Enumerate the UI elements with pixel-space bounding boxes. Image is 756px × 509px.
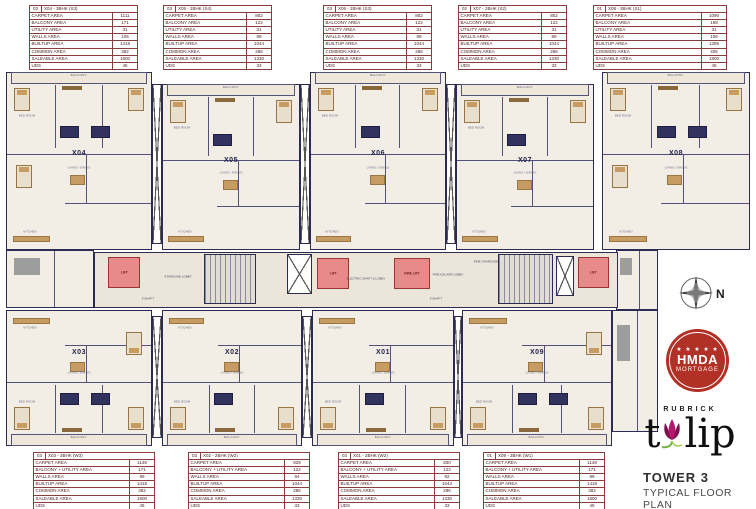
wall-divider xyxy=(511,206,593,207)
unit-label-x05: X05 xyxy=(163,157,299,164)
wardrobe-furniture xyxy=(215,98,235,102)
bed-furniture xyxy=(726,88,742,111)
unit-label-x06: X06 xyxy=(311,150,445,157)
room-label-kitchen: KITCHEN xyxy=(165,231,205,234)
wall-divider xyxy=(651,85,652,148)
unit-block-x02: BALCONY X02 LIVING / DINING KITCHEN BED … xyxy=(162,310,302,446)
balcony-label: BALCONY xyxy=(351,436,416,439)
room-label-bed: BED ROOM xyxy=(313,401,353,404)
brand-logo: RUBRICK t lip xyxy=(628,406,752,455)
lift: LIFT xyxy=(317,258,349,289)
wall-divider xyxy=(253,97,254,156)
wall-divider xyxy=(502,97,503,156)
toilet-block xyxy=(657,126,676,138)
hmda-mortgage-badge: ★ ★ ★ ★ ★ HMDA MORTGAGE xyxy=(666,329,729,392)
wordmark-lip: lip xyxy=(684,413,735,455)
wall-divider xyxy=(55,85,56,148)
wall-divider xyxy=(683,154,684,203)
unit-label-x03: X03 xyxy=(7,349,151,356)
unit-block-x01: BALCONY X01 LIVING / DINING KITCHEN BED … xyxy=(312,310,454,446)
dining-table-furniture xyxy=(517,180,532,190)
unit-label-x01: X01 xyxy=(313,349,453,356)
bed-furniture xyxy=(464,100,480,123)
kitchen-counter xyxy=(462,236,497,242)
toilet-block xyxy=(91,126,110,138)
balcony: BALCONY xyxy=(461,84,589,96)
light-well-shaft xyxy=(454,316,462,438)
wall-divider xyxy=(54,251,55,307)
wall-divider xyxy=(208,97,209,156)
room-label-living: LIVING / DINING xyxy=(505,172,545,175)
lift-label: LIFT xyxy=(121,271,128,274)
room-label-kitchen: KITCHEN xyxy=(467,327,507,330)
unit-block-x03: BALCONY X03 LIVING / DINING KITCHEN BED … xyxy=(6,310,152,446)
toilet-block xyxy=(361,126,380,138)
balcony-label: BALCONY xyxy=(200,436,264,439)
bed-furniture xyxy=(14,407,30,430)
bed-furniture xyxy=(14,88,30,111)
badge-hmda-text: HMDA xyxy=(677,353,718,367)
dining-table-furniture xyxy=(375,362,390,372)
room-label-living: LIVING / DINING xyxy=(212,371,252,374)
toilet-block xyxy=(214,393,233,405)
brand-tulip-wordmark: t lip xyxy=(628,413,752,455)
staircase xyxy=(204,254,256,304)
balcony: BALCONY xyxy=(467,434,606,446)
room-label-bed: BED ROOM xyxy=(310,115,350,118)
wall-divider xyxy=(369,345,453,346)
balcony: BALCONY xyxy=(315,72,441,84)
room-label-living: LIVING / DINING xyxy=(358,166,398,169)
wardrobe-furniture xyxy=(215,428,235,432)
room-label-bed: BED ROOM xyxy=(162,401,202,404)
unit-label-x09: X09 xyxy=(463,349,611,356)
light-well-shaft xyxy=(300,84,310,244)
room-label-living: LIVING / DINING xyxy=(363,371,403,374)
service-room-block xyxy=(616,250,658,310)
toilet-block xyxy=(688,126,707,138)
room-label-bed: BED ROOM xyxy=(456,127,496,130)
wall-divider xyxy=(365,203,445,204)
wardrobe-furniture xyxy=(362,86,382,90)
light-well-shaft xyxy=(152,84,162,244)
wardrobe-furniture xyxy=(658,86,678,90)
unit-block-x09: BALCONY X09 LIVING / DINING KITCHEN BED … xyxy=(462,310,612,446)
wall-divider xyxy=(547,97,548,156)
wardrobe-furniture xyxy=(62,428,82,432)
balcony-label: BALCONY xyxy=(503,436,572,439)
toilet-block xyxy=(60,126,79,138)
wall-divider xyxy=(313,382,453,383)
unit-block-x08: BALCONY X08 LIVING / DINING KITCHEN BED … xyxy=(602,72,750,250)
corridor-label: STAIRCASE LOBBY xyxy=(158,276,198,279)
wall-divider xyxy=(661,203,749,204)
duct-block xyxy=(617,325,630,361)
wall-divider xyxy=(102,85,103,148)
wall-divider xyxy=(699,85,700,148)
kitchen-counter xyxy=(319,318,355,324)
toilet-block xyxy=(518,393,537,405)
title-block: TOWER 3 TYPICAL FLOOR PLAN xyxy=(643,470,756,509)
toilet-block xyxy=(365,393,384,405)
wall-divider xyxy=(7,382,151,383)
unit-label-x04: X04 xyxy=(7,150,151,157)
toilet-block xyxy=(91,393,110,405)
duct-block xyxy=(620,258,632,275)
balcony: BALCONY xyxy=(607,72,744,84)
lift: LIFT xyxy=(108,257,140,288)
room-label-bed: BED ROOM xyxy=(7,115,47,118)
service-shaft xyxy=(287,254,312,294)
room-label-living: LIVING / DINING xyxy=(59,371,99,374)
compass-north-label: N xyxy=(716,287,725,301)
tower-title: TOWER 3 xyxy=(643,470,756,485)
toilet-block xyxy=(213,134,232,146)
wardrobe-furniture xyxy=(509,98,529,102)
room-label-kitchen: KITCHEN xyxy=(312,231,352,234)
bed-furniture xyxy=(318,88,334,111)
bed-furniture xyxy=(422,88,438,111)
kitchen-counter xyxy=(316,236,351,242)
room-label-living: LIVING / DINING xyxy=(211,172,251,175)
wall-divider xyxy=(217,206,299,207)
wordmark-t: t xyxy=(644,413,660,455)
balcony-label: BALCONY xyxy=(46,436,113,439)
wall-divider xyxy=(463,382,611,383)
wall-divider xyxy=(405,385,406,433)
dining-table-furniture xyxy=(223,180,238,190)
bed-furniture xyxy=(16,165,32,188)
wall-divider xyxy=(532,160,533,206)
balcony-label: BALCONY xyxy=(642,74,710,77)
wall-divider xyxy=(238,160,239,206)
kitchen-counter xyxy=(609,236,647,242)
wall-divider xyxy=(512,385,513,433)
dining-table-furniture xyxy=(224,362,239,372)
wall-divider xyxy=(65,203,151,204)
corridor-label: FIRE ESCAPE LOBBY xyxy=(428,274,468,277)
lift-label: LIFT xyxy=(590,271,597,274)
lift-label: LIFT xyxy=(330,272,337,275)
light-well-shaft xyxy=(152,316,162,438)
kitchen-counter xyxy=(13,318,50,324)
room-label-living: LIVING / DINING xyxy=(59,166,99,169)
bed-furniture xyxy=(128,407,144,430)
wall-divider xyxy=(86,154,87,203)
toilet-block xyxy=(60,393,79,405)
wall-divider xyxy=(254,385,255,433)
kitchen-counter xyxy=(13,236,50,242)
balcony-label: BALCONY xyxy=(347,74,409,77)
balcony-label: BALCONY xyxy=(46,74,113,77)
service-shaft xyxy=(556,256,574,296)
room-label-kitchen: KITCHEN xyxy=(10,327,50,330)
bed-furniture xyxy=(588,407,604,430)
unit-label-x02: X02 xyxy=(163,349,301,356)
bed-furniture xyxy=(430,407,446,430)
room-label-kitchen: KITCHEN xyxy=(606,231,646,234)
wall-divider xyxy=(163,382,301,383)
bed-furniture xyxy=(278,407,294,430)
dining-table-furniture xyxy=(70,175,85,185)
room-label-kitchen: KITCHEN xyxy=(165,327,205,330)
dining-table-furniture xyxy=(370,175,385,185)
wall-divider xyxy=(209,385,210,433)
compass-icon: N xyxy=(672,272,728,316)
dining-table-furniture xyxy=(528,362,543,372)
unit-block-x04: BALCONY X04 LIVING / DINING KITCHEN BED … xyxy=(6,72,152,250)
room-label-living: LIVING / DINING xyxy=(517,371,557,374)
balcony-label: BALCONY xyxy=(200,86,263,89)
bed-furniture xyxy=(320,407,336,430)
fire-lift: FIRE LIFT xyxy=(394,258,430,289)
balcony: BALCONY xyxy=(11,434,146,446)
balcony: BALCONY xyxy=(167,84,295,96)
room-label-bed: BED ROOM xyxy=(603,115,643,118)
wardrobe-furniture xyxy=(62,86,82,90)
dining-table-furniture xyxy=(70,362,85,372)
wall-divider xyxy=(355,85,356,148)
unit-label-x08: X08 xyxy=(603,150,749,157)
tulip-flower-icon xyxy=(661,417,683,451)
kitchen-counter xyxy=(168,236,203,242)
corridor-label: F.SHAFT xyxy=(416,298,456,301)
unit-block-x07: BALCONY X07 LIVING / DINING KITCHEN BED … xyxy=(456,84,594,250)
wardrobe-furniture xyxy=(519,428,539,432)
kitchen-counter xyxy=(169,318,205,324)
toilet-block xyxy=(507,134,526,146)
room-label-bed: BED ROOM xyxy=(464,401,504,404)
balcony-label: BALCONY xyxy=(494,86,557,89)
bed-furniture xyxy=(570,100,586,123)
unit-label-x07: X07 xyxy=(457,157,593,164)
floor-plan-sheet: 03 X04 - 3BHK (S3) CARPET AREA 1111 BALC… xyxy=(0,0,756,509)
light-well-shaft xyxy=(446,84,456,244)
badge-stars: ★ ★ ★ ★ ★ xyxy=(676,347,719,353)
bed-furniture xyxy=(170,407,186,430)
corridor-label: F.SHAFT xyxy=(128,298,168,301)
balcony: BALCONY xyxy=(167,434,297,446)
service-room-block xyxy=(6,250,94,308)
dining-table-furniture xyxy=(667,175,682,185)
bed-furniture xyxy=(276,100,292,123)
duct-block xyxy=(14,258,40,275)
room-label-living: LIVING / DINING xyxy=(656,166,696,169)
balcony: BALCONY xyxy=(11,72,146,84)
bed-furniture xyxy=(170,100,186,123)
balcony: BALCONY xyxy=(317,434,449,446)
room-label-bed: BED ROOM xyxy=(7,401,47,404)
wall-divider xyxy=(55,385,56,433)
lift-label: FIRE LIFT xyxy=(404,272,419,275)
bed-furniture xyxy=(612,165,628,188)
wardrobe-furniture xyxy=(366,428,386,432)
room-label-bed: BED ROOM xyxy=(162,127,202,130)
bed-furniture xyxy=(128,88,144,111)
staircase xyxy=(498,254,553,304)
plan-subtitle: TYPICAL FLOOR PLAN xyxy=(643,487,756,509)
corridor-label: ELECTRIC SHAFT & LOBBY xyxy=(346,278,386,281)
toilet-block xyxy=(549,393,568,405)
bed-furniture xyxy=(470,407,486,430)
wall-divider xyxy=(399,85,400,148)
wall-divider xyxy=(639,251,640,309)
unit-block-x05: BALCONY X05 LIVING / DINING KITCHEN BED … xyxy=(162,84,300,250)
kitchen-counter xyxy=(469,318,507,324)
room-label-kitchen: KITCHEN xyxy=(459,231,499,234)
lift: LIFT xyxy=(578,257,609,288)
room-label-kitchen: KITCHEN xyxy=(315,327,355,330)
bed-furniture xyxy=(610,88,626,111)
corridor-label: FIRE STAIRCASE xyxy=(466,261,506,264)
unit-block-x06: BALCONY X06 LIVING / DINING KITCHEN BED … xyxy=(310,72,446,250)
wall-divider xyxy=(359,385,360,433)
room-label-kitchen: KITCHEN xyxy=(10,231,50,234)
light-well-shaft xyxy=(302,316,312,438)
wall-divider xyxy=(218,345,301,346)
badge-mortgage-text: MORTGAGE xyxy=(676,367,719,374)
